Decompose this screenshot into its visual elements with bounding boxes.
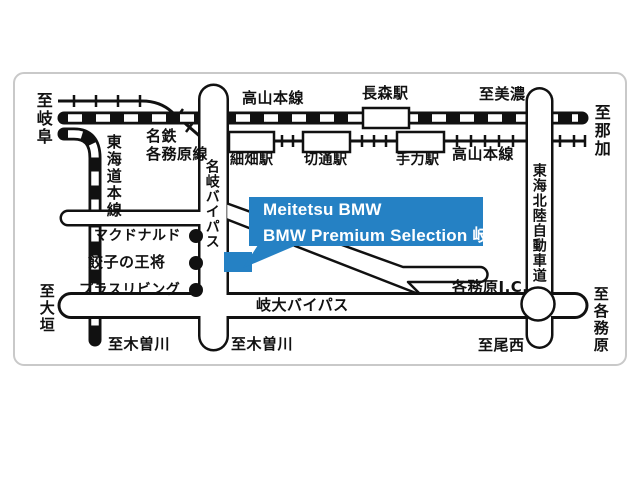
dealer-access-map: 至岐阜 高山本線 長森駅 至美濃 至那加 名鉄 各務原線 細畑駅 切通駅 手力駅… bbox=[0, 0, 640, 480]
kiridoshi-station-label: 切通駅 bbox=[304, 153, 348, 168]
mcdonalds-dot bbox=[189, 229, 203, 243]
gyoza-no-ohsho-label: 餃子の王将 bbox=[88, 255, 166, 271]
tokai-hokuriku-expressway-label: 東海北陸自動車道 bbox=[531, 163, 546, 283]
to-ogaki-label: 至大垣 bbox=[38, 283, 54, 334]
to-bisai-label: 至尾西 bbox=[478, 338, 525, 354]
tokaido-line-label: 東海道本線 bbox=[105, 134, 121, 219]
to-gifu-label: 至岐阜 bbox=[34, 92, 51, 146]
mcdonalds-label: マクドナルド bbox=[94, 229, 181, 244]
kakamigahara-line-label: 各務原線 bbox=[146, 147, 208, 163]
nagamori-station-label: 長森駅 bbox=[362, 86, 409, 102]
meigi-bypass-label: 名岐バイパス bbox=[204, 159, 219, 249]
takayama-line-label-right: 高山本線 bbox=[452, 147, 514, 163]
to-kakamigahara-label: 至各務原 bbox=[592, 286, 608, 354]
callout-title: Meitetsu BMW bbox=[263, 200, 382, 220]
to-naka-label: 至那加 bbox=[592, 104, 609, 158]
to-kisogawa-label-left: 至木曽川 bbox=[108, 337, 170, 353]
meitetsu-label: 名鉄 bbox=[146, 129, 177, 145]
hosobata-station-box bbox=[229, 132, 274, 152]
kiridoshi-station-box bbox=[303, 132, 350, 152]
plus-living-label: プラスリビング bbox=[79, 283, 180, 298]
nagamori-station-box bbox=[363, 108, 409, 128]
tejikara-station-label: 手力駅 bbox=[396, 153, 440, 168]
callout-subtitle: BMW Premium Selection 岐阜 bbox=[263, 221, 507, 246]
to-kisogawa-label-center: 至木曽川 bbox=[231, 337, 293, 353]
hosobata-station-label: 細畑駅 bbox=[230, 153, 274, 168]
to-mino-label: 至美濃 bbox=[479, 87, 526, 103]
kakamigahara-ic-label: 各務原I.C. bbox=[452, 280, 529, 296]
gidai-bypass-label: 岐大バイパス bbox=[256, 298, 349, 314]
tejikara-station-box bbox=[397, 132, 444, 152]
plus-living-dot bbox=[189, 283, 203, 297]
poi-dots bbox=[189, 229, 203, 297]
gyoza-no-ohsho-dot bbox=[189, 256, 203, 270]
takayama-line-label-top: 高山本線 bbox=[242, 91, 304, 107]
